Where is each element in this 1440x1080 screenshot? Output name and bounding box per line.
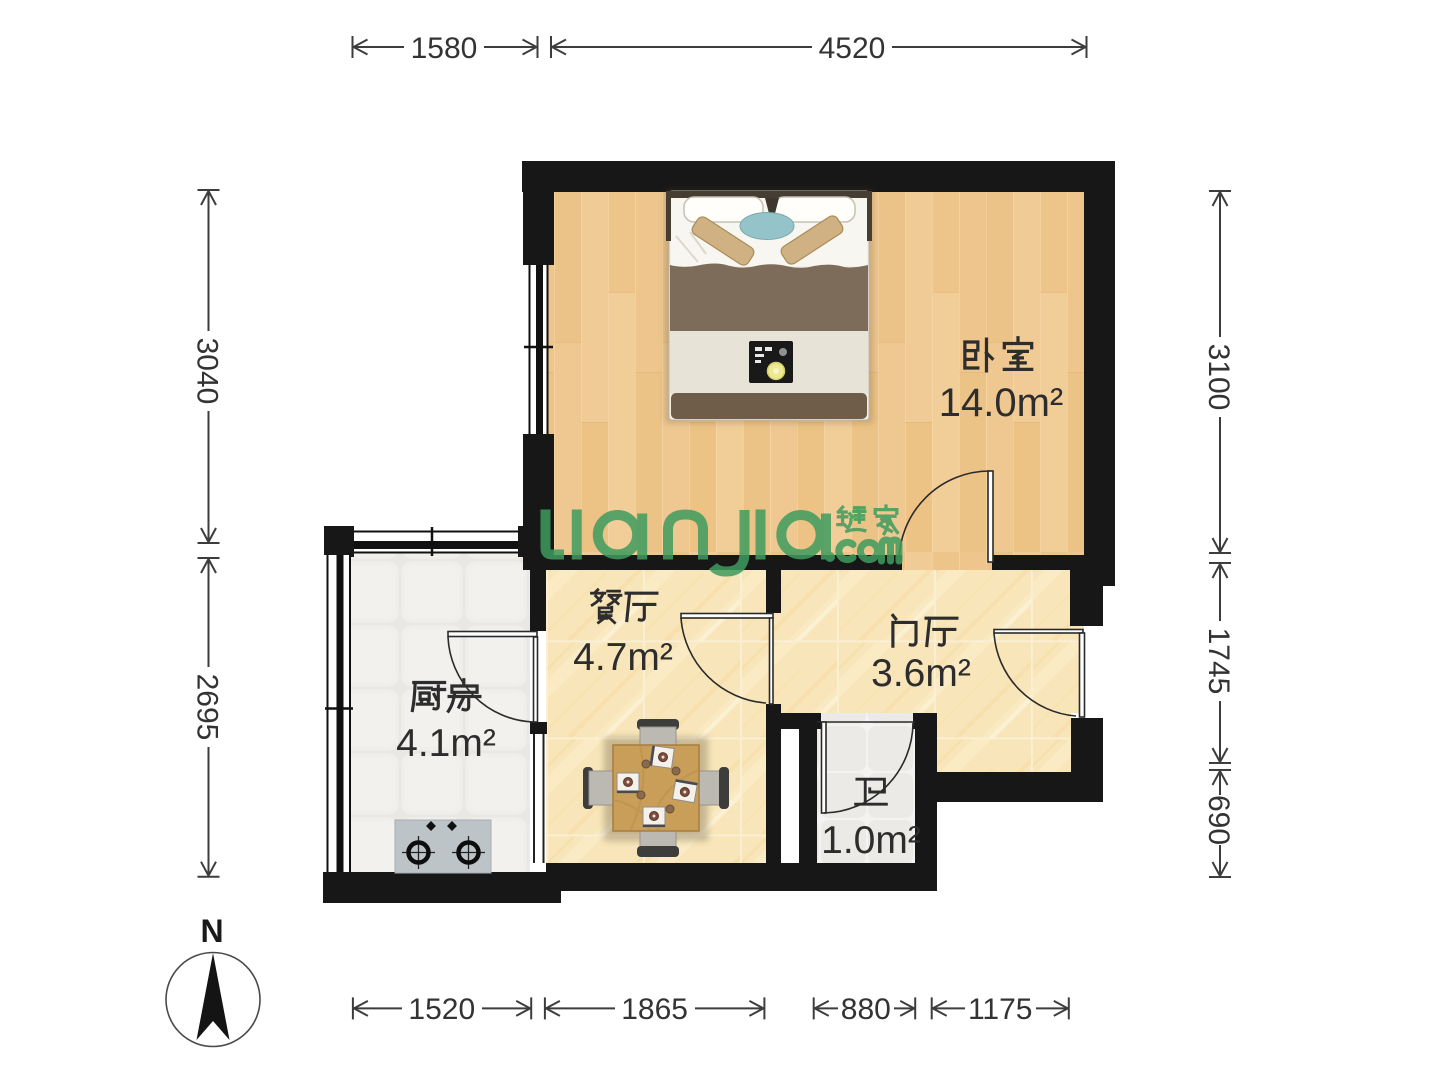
svg-text:880: 880 xyxy=(841,993,891,1026)
svg-text:14.0m²: 14.0m² xyxy=(939,381,1064,425)
svg-text:1520: 1520 xyxy=(408,993,475,1026)
svg-text:1580: 1580 xyxy=(411,32,478,65)
svg-text:N: N xyxy=(200,913,223,949)
svg-text:4.1m²: 4.1m² xyxy=(396,722,496,765)
svg-text:1865: 1865 xyxy=(621,993,688,1026)
svg-text:4.7m²: 4.7m² xyxy=(573,636,673,679)
svg-text:690: 690 xyxy=(1202,795,1235,845)
svg-text:1175: 1175 xyxy=(968,993,1033,1026)
svg-text:3040: 3040 xyxy=(191,338,224,405)
svg-text:1.0m²: 1.0m² xyxy=(821,819,921,862)
svg-text:2695: 2695 xyxy=(191,674,224,741)
svg-text:3100: 3100 xyxy=(1202,344,1235,411)
svg-text:3.6m²: 3.6m² xyxy=(871,652,971,695)
svg-text:4520: 4520 xyxy=(819,32,886,65)
svg-text:1745: 1745 xyxy=(1202,628,1235,695)
